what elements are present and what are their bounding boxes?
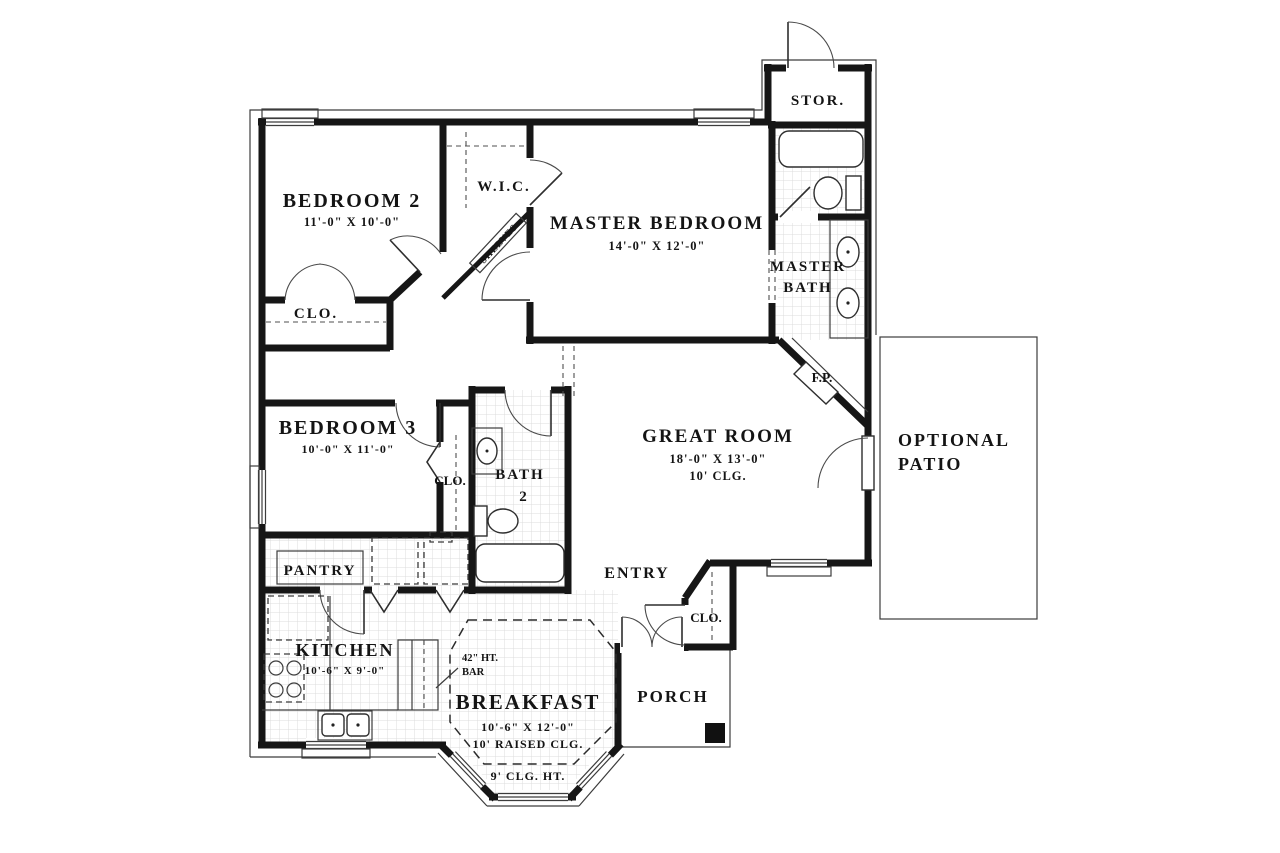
breakfast-dims: 10'-6" X 12'-0" [481, 720, 575, 734]
master-bath-pocket-door [766, 250, 778, 303]
patio-label-1: OPTIONAL [898, 430, 1010, 450]
wic-label: W.I.C. [477, 179, 531, 195]
wic-shelves-label: SHELVES [479, 223, 520, 266]
master-bedroom-dims: 14'-0" X 12'-0" [609, 239, 706, 253]
breakfast-label: BREAKFAST [456, 690, 601, 714]
master-bath-label-1: MASTER [770, 259, 846, 275]
storage-door [786, 22, 838, 74]
floor-plan-page: BEDROOM 2 11'-0" X 10'-0" W.I.C. SHELVES… [0, 0, 1280, 853]
porch-label: PORCH [637, 687, 708, 706]
entry-label: ENTRY [604, 565, 669, 582]
bedroom2-closet-label: CLO. [294, 306, 338, 322]
bedroom3-label: BEDROOM 3 [279, 417, 418, 439]
bedroom3-dims: 10'-0" X 11'-0" [302, 442, 395, 456]
breakfast-ceiling: 10' RAISED CLG. [473, 737, 584, 751]
bedroom2-label: BEDROOM 2 [283, 190, 422, 212]
breakfast-ceiling-note: 9' CLG. HT. [491, 769, 566, 783]
bar-note-1: 42" HT. [462, 653, 498, 664]
bedroom2-door [390, 236, 441, 272]
storage-label: STOR. [791, 93, 845, 109]
master-bedroom-window [694, 109, 754, 129]
fireplace-label: F.P. [812, 370, 833, 385]
bath2-label-1: BATH [495, 467, 544, 483]
bar-note-2: BAR [462, 667, 485, 678]
great-room-label: GREAT ROOM [642, 426, 794, 447]
bath2-tub [476, 544, 564, 582]
great-room-window [767, 556, 831, 576]
master-bath-label-2: BATH [783, 280, 832, 296]
patio-door [818, 436, 874, 490]
kitchen-label: KITCHEN [295, 640, 394, 660]
great-room-ceiling: 10' CLG. [689, 469, 746, 483]
bedroom3-window [250, 466, 269, 528]
kitchen-window [302, 738, 370, 758]
entry-closet-label: CLO. [690, 610, 721, 625]
master-bath-toilet [814, 176, 861, 210]
bedroom3-closet-label: CLO. [434, 473, 465, 488]
bath2-label-2: 2 [519, 489, 529, 505]
great-room-dims: 18'-0" X 13'-0" [670, 452, 767, 466]
porch-column [705, 723, 725, 743]
bath2-toilet [474, 506, 518, 536]
master-bedroom-label: MASTER BEDROOM [550, 213, 764, 234]
bedroom2-dims: 11'-0" X 10'-0" [304, 215, 400, 229]
optional-patio-outline [880, 337, 1037, 619]
kitchen-dims: 10'-6" X 9'-0" [305, 665, 386, 677]
master-bath-tub [779, 131, 863, 167]
bedroom2-window [262, 109, 318, 129]
floor-plan-canvas: BEDROOM 2 11'-0" X 10'-0" W.I.C. SHELVES… [0, 0, 1280, 853]
front-door [620, 617, 684, 653]
patio-label-2: PATIO [898, 454, 962, 474]
pantry-label: PANTRY [284, 563, 357, 579]
